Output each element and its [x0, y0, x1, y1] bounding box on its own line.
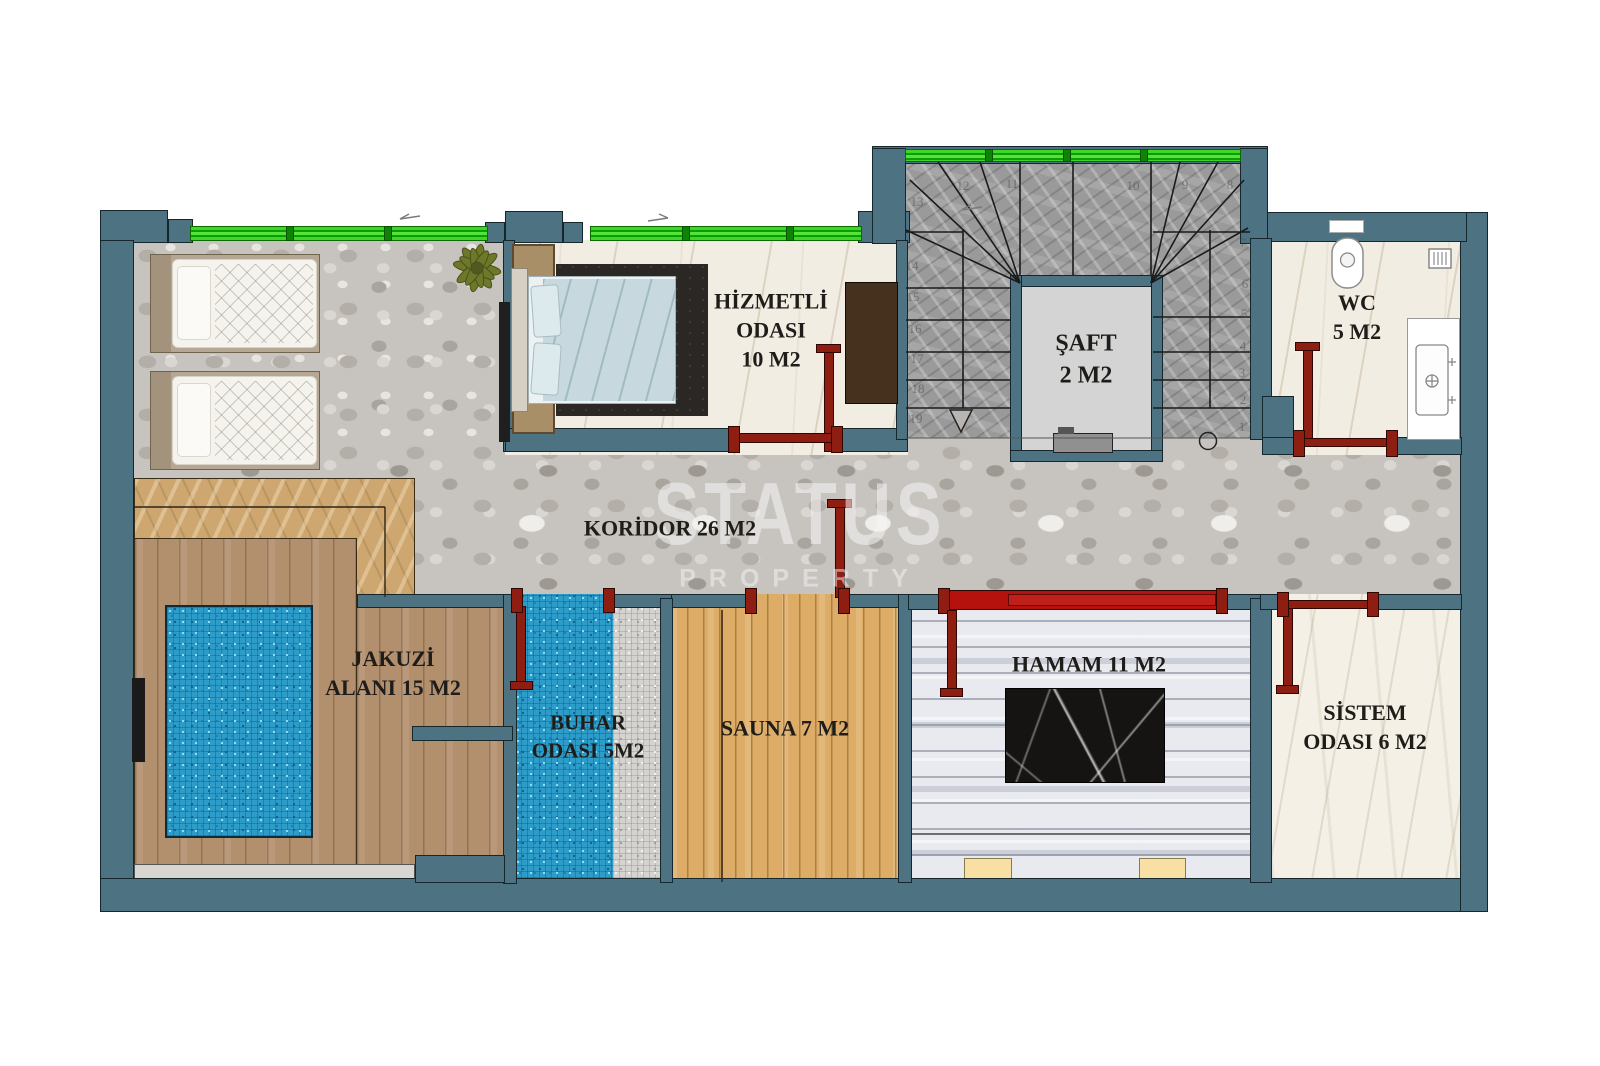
room-label-sauna: SAUNA 7 M2 [721, 713, 849, 742]
room-label-wc: WC 5 M2 [1333, 288, 1381, 346]
stair-number: 10 [1127, 178, 1140, 194]
stair-number: 1 [1239, 419, 1246, 435]
room-label-line: 10 M2 [714, 345, 828, 374]
stair-number: 3 [1239, 365, 1246, 381]
stairs-down-arrow-icon [950, 410, 972, 432]
stair-number: 6 [1242, 276, 1249, 292]
room-label-buhar: BUHAR ODASI 5M2 [532, 709, 645, 764]
stair-number: 18 [912, 381, 925, 397]
stair-number: 12 [957, 178, 970, 194]
stair-number: 14 [906, 258, 919, 274]
room-label-line: SAUNA 7 M2 [721, 713, 849, 742]
room-label-line: ODASI [714, 315, 828, 344]
stair-number: 19 [910, 411, 923, 427]
stair-number: 15 [907, 289, 920, 305]
stair-number: 11 [1006, 176, 1019, 192]
room-label-jakuzi: JAKUZİ ALANI 15 M2 [325, 644, 461, 702]
room-label-line: SİSTEM [1303, 698, 1426, 727]
room-label-line: ODASI 6 M2 [1303, 727, 1426, 756]
room-label-hamam: HAMAM 11 M2 [1012, 649, 1166, 678]
stair-number: 7 [1240, 235, 1247, 251]
stair-number: 13 [911, 194, 924, 210]
room-label-hizmetli: HİZMETLİ ODASI 10 M2 [714, 286, 828, 373]
stair-number: 16 [909, 321, 922, 337]
room-label-saft: ŞAFT 2 M2 [1055, 328, 1116, 391]
tan-step-lines [134, 507, 385, 597]
room-label-line: HİZMETLİ [714, 286, 828, 315]
room-label-line: KORİDOR 26 M2 [584, 513, 756, 542]
room-label-line: BUHAR [532, 709, 645, 737]
stair-number: 4 [1240, 338, 1247, 354]
room-label-line: WC [1333, 288, 1381, 317]
window-opening-marks [400, 205, 982, 221]
watermark-sub: PROPERTY [679, 565, 921, 594]
room-label-line: JAKUZİ [325, 644, 461, 673]
column-circle-icon [1200, 433, 1217, 450]
room-label-line: ALANI 15 M2 [325, 673, 461, 702]
stair-number: 17 [911, 351, 924, 367]
stair-number: 2 [1240, 392, 1247, 408]
room-label-line: 5 M2 [1333, 317, 1381, 346]
vent-grate-icon [1429, 249, 1451, 268]
sink-icon [1416, 345, 1456, 415]
room-label-koridor: KORİDOR 26 M2 [584, 513, 756, 542]
room-label-sistem: SİSTEM ODASI 6 M2 [1303, 698, 1426, 756]
toilet-icon [1332, 238, 1363, 288]
room-label-line: ODASI 5M2 [532, 737, 645, 765]
room-label-line: ŞAFT [1055, 328, 1116, 360]
stair-number: 9 [1182, 177, 1189, 193]
room-label-line: 2 M2 [1055, 360, 1116, 392]
stair-number: 8 [1227, 177, 1234, 193]
stair-number: 5 [1241, 306, 1248, 322]
room-label-line: HAMAM 11 M2 [1012, 649, 1166, 678]
floor-plan: 1 2 3 4 5 6 7 8 9 10 11 12 13 14 15 16 1… [0, 0, 1600, 1066]
plant-icon [452, 243, 501, 292]
